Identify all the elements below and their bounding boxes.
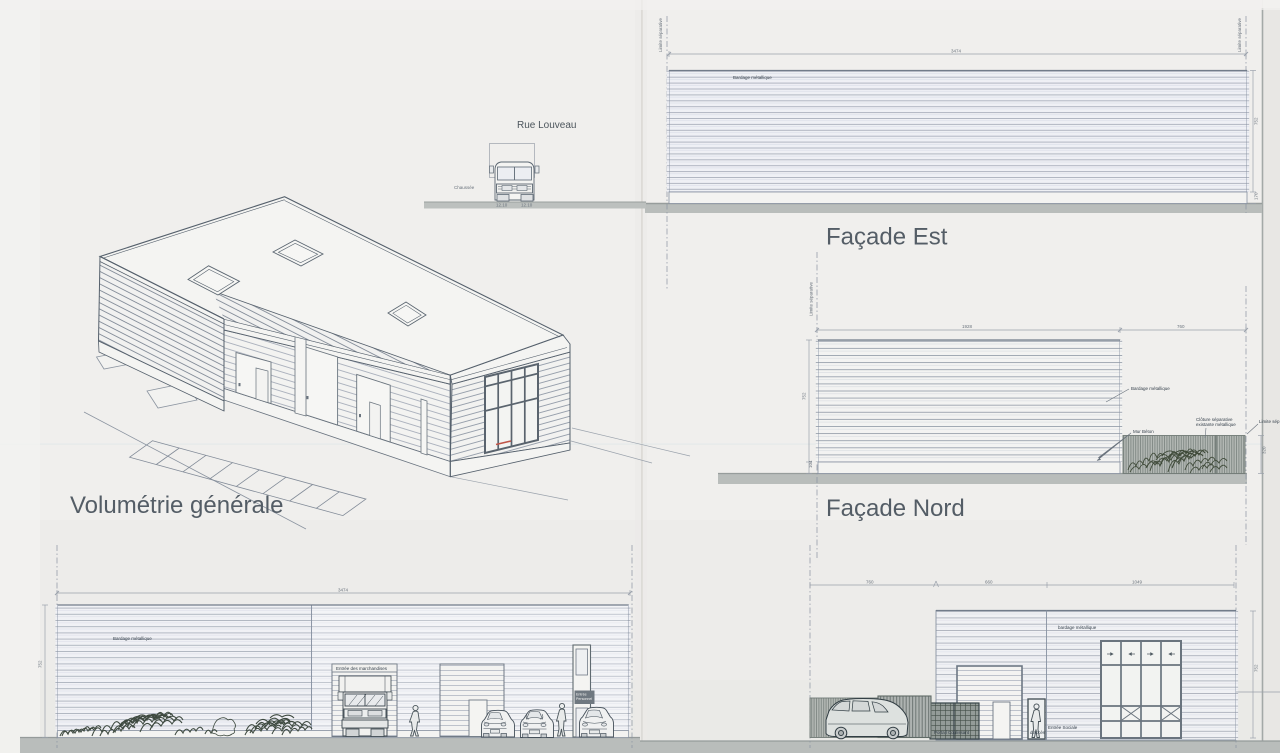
svg-text:320: 320 — [1262, 446, 1267, 454]
svg-text:Entrée: Entrée — [576, 693, 587, 697]
svg-text:Volumétrie générale: Volumétrie générale — [70, 492, 283, 519]
svg-text:752: 752 — [802, 392, 807, 400]
svg-text:170: 170 — [1254, 192, 1259, 200]
svg-text:Entrée des marchandises: Entrée des marchandises — [336, 666, 388, 671]
svg-text:12.10: 12.10 — [496, 203, 508, 208]
svg-text:752: 752 — [38, 660, 43, 668]
svg-text:104: 104 — [808, 460, 813, 468]
svg-text:d'accès: d'accès — [1030, 730, 1046, 735]
svg-text:Façade Nord: Façade Nord — [826, 495, 965, 522]
svg-text:existante métallique: existante métallique — [1196, 422, 1236, 427]
svg-text:3474: 3474 — [951, 49, 962, 54]
svg-text:Mur Béton: Mur Béton — [1133, 429, 1154, 434]
svg-text:12.10: 12.10 — [521, 203, 533, 208]
svg-text:660: 660 — [985, 580, 993, 585]
svg-text:Façade Est: Façade Est — [826, 224, 948, 251]
svg-text:Limite sép: Limite sép — [1259, 419, 1280, 424]
svg-text:Rue Louveau: Rue Louveau — [517, 120, 577, 131]
svg-text:Limite séparative: Limite séparative — [809, 281, 814, 316]
svg-text:Personnel: Personnel — [576, 697, 592, 701]
svg-text:752: 752 — [1254, 664, 1259, 672]
svg-text:Bardage métallique: Bardage métallique — [733, 75, 772, 80]
svg-text:760: 760 — [866, 580, 874, 585]
svg-text:Entrée Sociale: Entrée Sociale — [1048, 725, 1078, 730]
svg-text:1928: 1928 — [962, 324, 973, 329]
svg-text:Limite séparative: Limite séparative — [1237, 17, 1242, 52]
svg-text:760: 760 — [1177, 324, 1185, 329]
svg-text:1049: 1049 — [1132, 580, 1143, 585]
svg-text:Bardage métallique: Bardage métallique — [113, 636, 152, 641]
svg-text:Limite séparative: Limite séparative — [658, 17, 663, 52]
svg-text:bardage métallique: bardage métallique — [1058, 625, 1097, 630]
svg-text:3474: 3474 — [338, 588, 349, 593]
svg-text:752: 752 — [1254, 117, 1259, 125]
svg-text:Bardage métallique: Bardage métallique — [1131, 386, 1170, 391]
svg-text:Portail Coulissant: Portail Coulissant — [934, 730, 970, 735]
svg-text:Chaussée: Chaussée — [454, 185, 475, 190]
